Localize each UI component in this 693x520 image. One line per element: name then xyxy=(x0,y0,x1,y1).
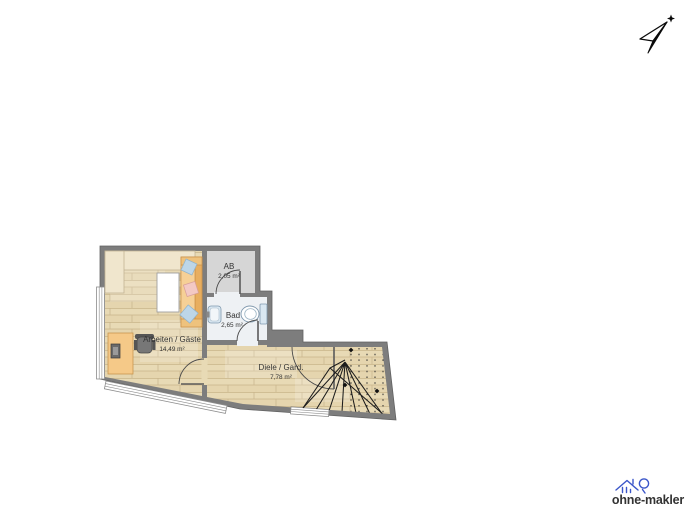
room-area-bad: 2,65 m² xyxy=(221,322,243,329)
floor-plan-page: Arbeiten / Gäste 14,49 m² AB 2,05 m² Bad… xyxy=(0,0,693,520)
room-area-ab: 2,05 m² xyxy=(218,273,240,280)
coffee-table xyxy=(157,273,179,312)
brand-logo: ohne-makler xyxy=(612,479,684,507)
sink xyxy=(207,306,222,323)
north-star-glyph xyxy=(667,15,675,23)
room-label-diele: Diele / Gard. xyxy=(259,363,304,372)
window-left xyxy=(97,287,105,379)
opening-ab-bad xyxy=(214,292,240,298)
room-area-arbeiten: 14,49 m² xyxy=(159,346,184,353)
brand-logo-text: ohne-makler xyxy=(612,493,684,507)
toilet xyxy=(241,304,267,324)
opening-bad-diele xyxy=(237,339,258,346)
north-arrow-icon xyxy=(640,15,675,54)
room-area-diele: 7,78 m² xyxy=(270,374,292,381)
desk xyxy=(108,333,133,374)
house-tree-icon xyxy=(616,479,649,493)
room-label-arbeiten: Arbeiten / Gäste xyxy=(143,335,201,344)
room-label-bad: Bad xyxy=(226,311,240,320)
opening-arbeiten-diele xyxy=(202,358,208,385)
floor-plan-canvas: Arbeiten / Gäste 14,49 m² AB 2,05 m² Bad… xyxy=(0,0,693,520)
sofa xyxy=(180,257,202,327)
room-label-ab: AB xyxy=(224,262,235,271)
